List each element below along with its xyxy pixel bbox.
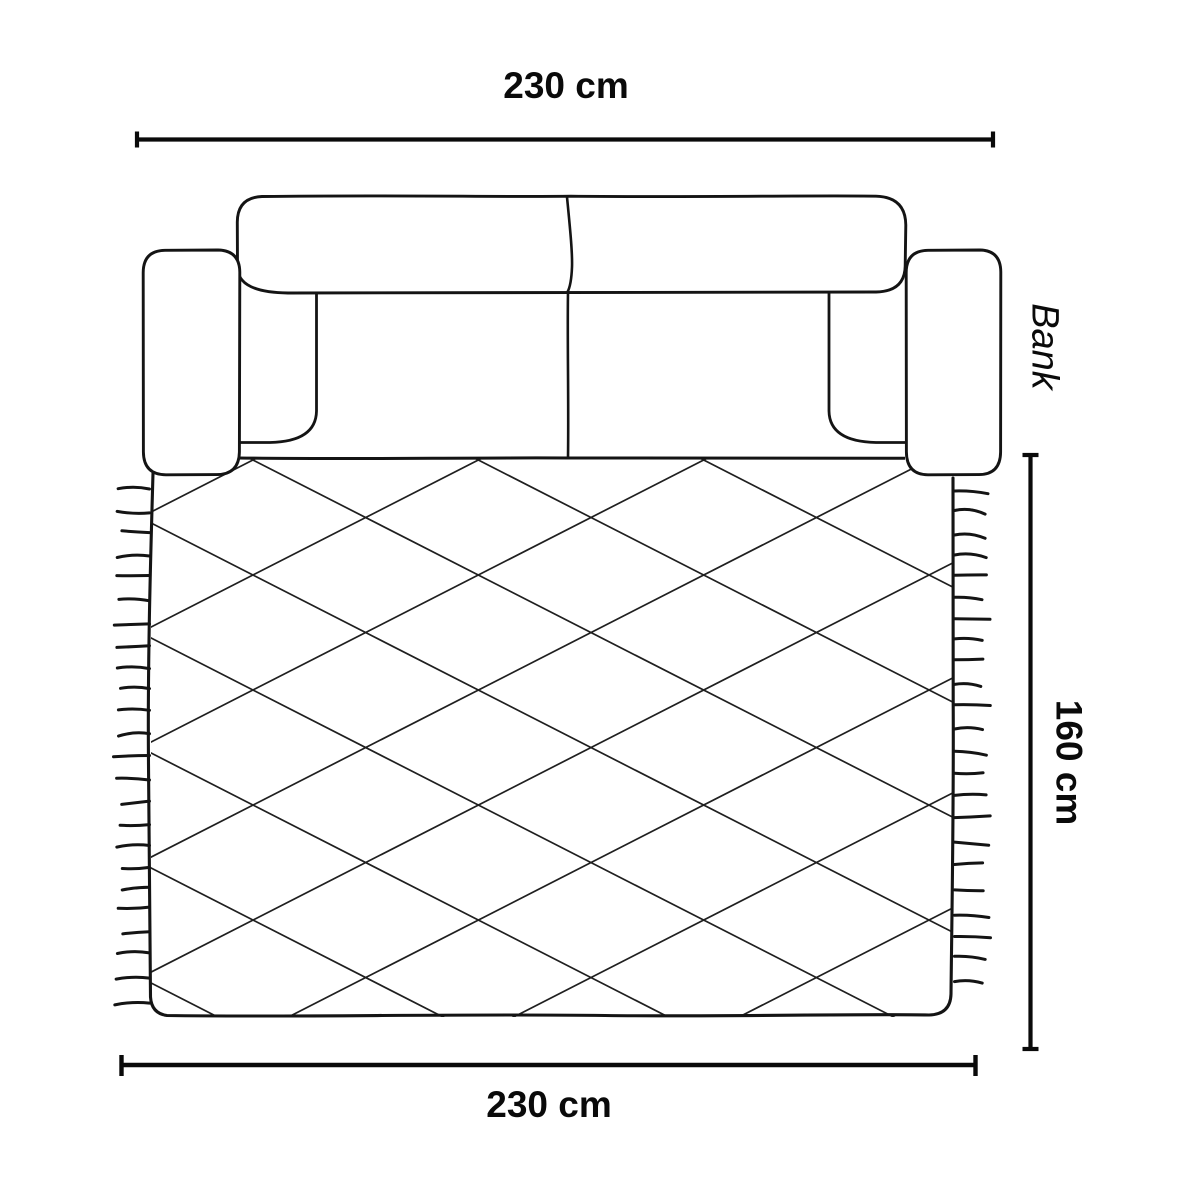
svg-text:Bank: Bank [1024, 303, 1066, 392]
svg-text:230 cm: 230 cm [486, 1084, 612, 1125]
svg-text:230 cm: 230 cm [503, 65, 629, 106]
svg-text:160 cm: 160 cm [1049, 700, 1090, 826]
